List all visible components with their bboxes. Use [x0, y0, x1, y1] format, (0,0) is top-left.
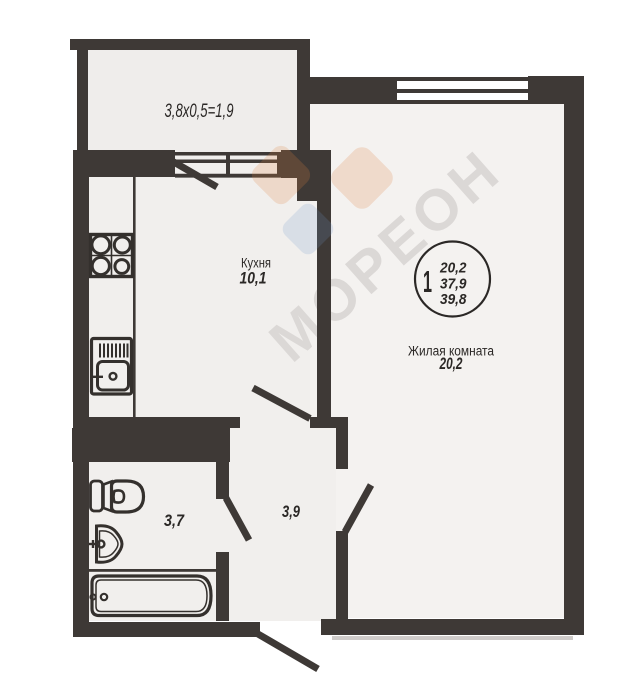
svg-text:3,9: 3,9	[282, 502, 300, 521]
svg-text:20,2: 20,2	[439, 260, 467, 277]
svg-text:39,8: 39,8	[440, 291, 467, 308]
svg-text:1: 1	[423, 264, 432, 299]
svg-text:3,7: 3,7	[164, 511, 185, 530]
svg-text:Кухня: Кухня	[241, 256, 271, 271]
svg-text:37,9: 37,9	[440, 275, 467, 292]
svg-text:3,8x0,5=1,9: 3,8x0,5=1,9	[165, 100, 234, 122]
svg-text:10,1: 10,1	[240, 270, 267, 288]
svg-text:20,2: 20,2	[439, 355, 463, 373]
